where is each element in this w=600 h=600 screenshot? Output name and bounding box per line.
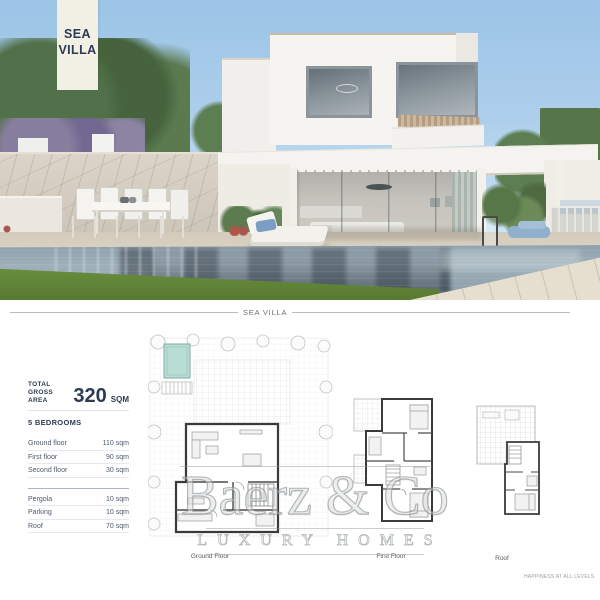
flower-accent [228, 226, 250, 236]
area-row-parking: Parking 10 sqm [28, 506, 129, 520]
watermark-top-line [180, 466, 432, 467]
ground-floor-plan [148, 332, 333, 562]
pool-towels [518, 221, 546, 229]
total-area-label: TOTAL GROSS AREA [28, 381, 65, 405]
distant-house [92, 134, 114, 152]
divider-line-right [292, 312, 570, 313]
divider-line-left [10, 312, 238, 313]
total-area-unit: SQM [111, 395, 129, 404]
roof-plan [475, 402, 550, 522]
balcony-parapet [392, 124, 484, 148]
banner-line2: VILLA [57, 42, 98, 58]
tableware [120, 197, 138, 203]
first-floor-plan [352, 393, 437, 528]
table-leg [96, 210, 98, 234]
area-row-pergola: Pergola 10 sqm [28, 493, 129, 507]
brochure-page: SEA VILLA SEA VILLA TOTAL GROSS AREA 320… [0, 0, 600, 600]
upper-window-left-glass [309, 69, 369, 115]
info-panel: TOTAL GROSS AREA 320 SQM 5 BEDROOMS Grou… [28, 381, 129, 533]
chair-legs [72, 216, 192, 238]
upper-window-right-glass [399, 65, 475, 115]
ceiling-lamp-reflection [336, 84, 358, 93]
sea-villa-banner: SEA VILLA [57, 0, 98, 90]
lantern [482, 216, 498, 250]
footer-note: HAPPINESS AT ALL LEVELS [524, 574, 594, 580]
area-row-ground: Ground floor 110 sqm [28, 437, 129, 451]
roof-label: Roof [480, 555, 524, 562]
section-divider: SEA VILLA [10, 308, 570, 317]
section-title: SEA VILLA [243, 308, 287, 317]
villa-upper-left-volume [222, 58, 276, 164]
area-row-roof: Roof 70 sqm [28, 520, 129, 534]
villa-photo: SEA VILLA [0, 0, 600, 300]
table-divider [28, 488, 129, 489]
dining-table [92, 202, 170, 212]
area-table: Ground floor 110 sqm First floor 90 sqm … [28, 437, 129, 533]
table-leg [162, 210, 164, 234]
area-row-second: Second floor 30 sqm [28, 464, 129, 478]
total-area-row: TOTAL GROSS AREA 320 SQM [28, 381, 129, 411]
flower-accent [0, 224, 14, 234]
total-area-value: 320 [73, 387, 106, 405]
area-row-first: First floor 90 sqm [28, 451, 129, 465]
ground-floor-label: Ground Floor [170, 553, 250, 560]
bedrooms-label: 5 BEDROOMS [28, 418, 129, 427]
first-floor-label: First Floor [355, 553, 427, 560]
banner-line1: SEA [57, 26, 98, 42]
